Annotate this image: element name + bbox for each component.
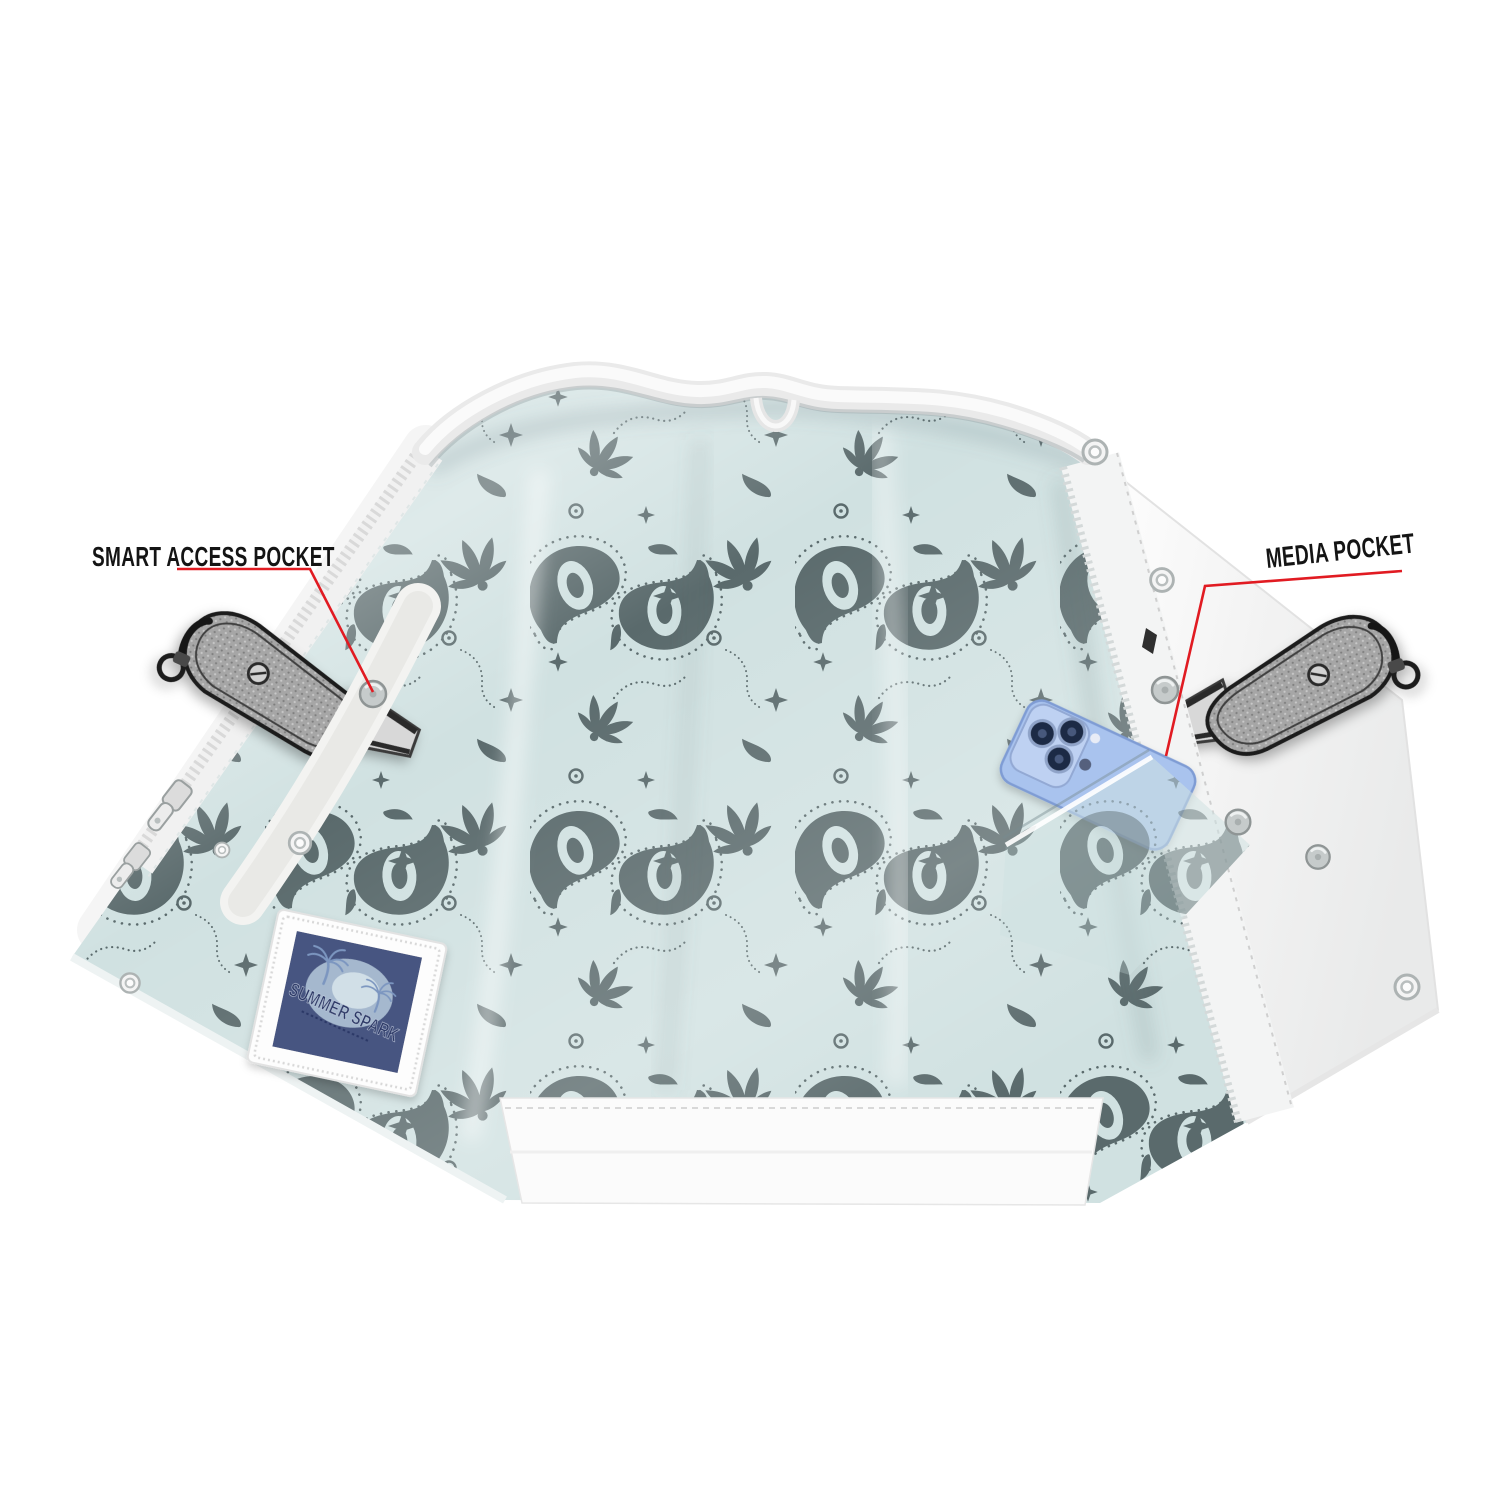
open-vest: SUMMER SPARK (72, 371, 1438, 1205)
snap-button (1226, 810, 1251, 835)
smart-access-pocket-label: SMART ACCESS POCKET (92, 541, 335, 573)
vest-illustration: SUMMER SPARK (0, 0, 1500, 1500)
snap-button (1306, 845, 1329, 868)
snap-button (1152, 677, 1178, 703)
product-figure: SUMMER SPARK SMA (0, 0, 1500, 1500)
snap-button (360, 681, 386, 707)
hem-band (500, 1098, 1103, 1205)
